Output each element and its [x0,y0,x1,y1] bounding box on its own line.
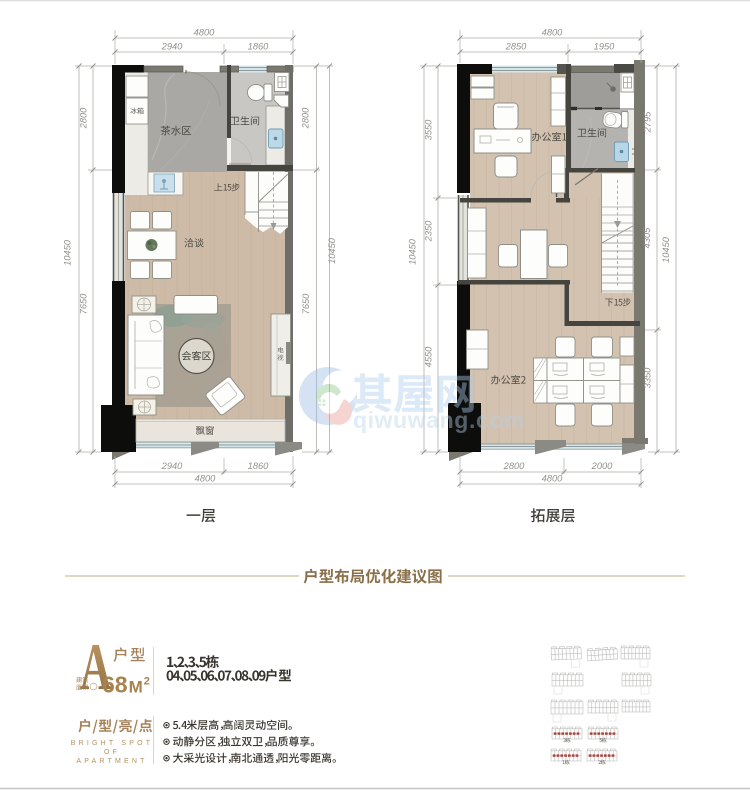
svg-text:10450: 10450 [63,239,73,266]
svg-text:10450: 10450 [408,238,418,265]
svg-text:10450: 10450 [327,237,337,264]
svg-text:4800: 4800 [194,28,216,38]
svg-text:2850: 2850 [505,42,528,52]
svg-text:4550: 4550 [424,346,434,368]
svg-text:2800: 2800 [79,107,89,130]
svg-text:2350: 2350 [424,220,434,243]
svg-text:4800: 4800 [195,474,217,484]
svg-text:2800: 2800 [301,107,311,130]
svg-text:10450: 10450 [661,236,671,263]
svg-text:7650: 7650 [301,293,311,315]
svg-text:1950: 1950 [594,42,616,52]
svg-text:2000: 2000 [591,461,614,471]
svg-text:2795: 2795 [643,111,653,134]
svg-text:4800: 4800 [542,28,564,38]
svg-text:3350: 3350 [643,367,653,389]
svg-text:4305: 4305 [642,227,652,249]
svg-text:2800: 2800 [503,461,526,471]
svg-text:1860: 1860 [248,42,270,52]
svg-text:BRIGHT SPOT: BRIGHT SPOT [71,740,154,747]
svg-text:2940: 2940 [161,42,184,52]
svg-text:3550: 3550 [424,119,434,141]
svg-text:qiwuwang.com: qiwuwang.com [353,407,525,433]
svg-text:1860: 1860 [248,461,270,471]
svg-text:4800: 4800 [542,474,564,484]
svg-text:7650: 7650 [79,293,89,315]
svg-text:2940: 2940 [161,461,184,471]
svg-text:OF: OF [104,749,120,756]
svg-text:APARTMENT: APARTMENT [76,758,147,765]
